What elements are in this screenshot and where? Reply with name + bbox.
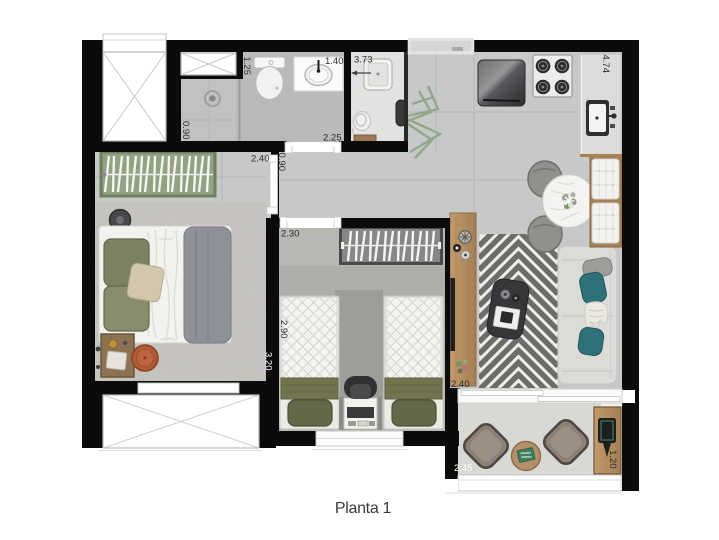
svg-text:0.90: 0.90 xyxy=(276,153,287,172)
svg-text:2.90: 2.90 xyxy=(278,320,289,339)
svg-text:2.45: 2.45 xyxy=(454,463,473,474)
svg-text:2.30: 2.30 xyxy=(281,229,300,240)
svg-text:2.40: 2.40 xyxy=(251,154,270,165)
svg-text:3.73: 3.73 xyxy=(354,55,373,66)
svg-text:3.20: 3.20 xyxy=(263,352,274,371)
svg-text:1.25: 1.25 xyxy=(241,57,252,76)
svg-text:2.25: 2.25 xyxy=(323,133,342,144)
svg-text:0.90: 0.90 xyxy=(180,121,191,140)
svg-text:1.40: 1.40 xyxy=(325,56,344,67)
svg-text:2.40: 2.40 xyxy=(451,379,470,390)
svg-text:1.20: 1.20 xyxy=(607,450,618,469)
svg-text:4.74: 4.74 xyxy=(600,55,611,74)
svg-text:Planta 1: Planta 1 xyxy=(335,500,392,517)
